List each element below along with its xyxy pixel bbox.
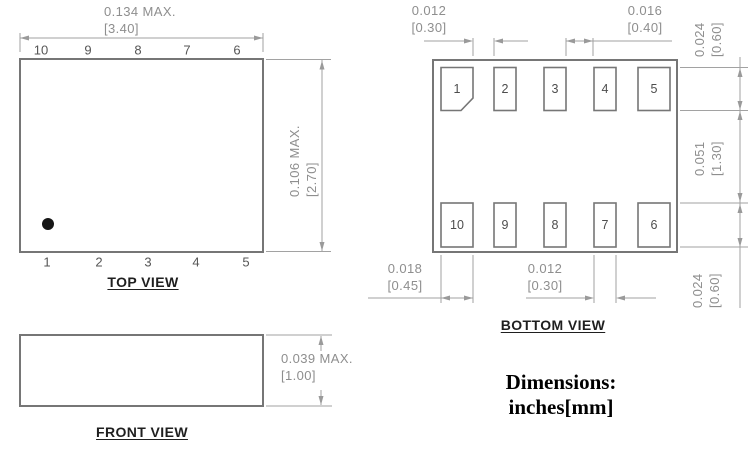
top-view-pin-label: 10 bbox=[34, 43, 48, 58]
dim-mm: [0.30] bbox=[523, 278, 567, 295]
dim-corner-pad-width-label: 0.018 [0.45] bbox=[385, 261, 425, 294]
pad-number-label: 4 bbox=[602, 82, 609, 96]
dim-gap-pad3-pad4-label: 0.016 [0.40] bbox=[623, 3, 667, 36]
dim-pad-height-bottom-label: 0.024 [0.60] bbox=[689, 258, 723, 308]
dim-mm: [0.60] bbox=[706, 258, 723, 308]
dim-gap-pad3-pad4 bbox=[566, 38, 672, 56]
dim-inches: 0.012 bbox=[407, 3, 451, 20]
dim-inches: 0.106 MAX. bbox=[286, 107, 303, 197]
dim-inches: 0.012 bbox=[523, 261, 567, 278]
dim-pad-height-top-label: 0.024 [0.60] bbox=[691, 7, 725, 57]
dim-inches: 0.051 bbox=[691, 126, 708, 176]
dim-gap-pad1-pad2-label: 0.012 [0.30] bbox=[407, 3, 451, 36]
dim-row-spacing-label: 0.051 [1.30] bbox=[691, 126, 725, 176]
package-outline-drawing: 0.134 MAX. [3.40] 0.106 MAX. [2.70] 10 9… bbox=[0, 0, 753, 451]
dim-inner-pad-width-label: 0.012 [0.30] bbox=[523, 261, 567, 294]
pad-number-label: 3 bbox=[552, 82, 559, 96]
dim-top-view-height-label: 0.106 MAX. [2.70] bbox=[286, 107, 320, 197]
pad-number-label: 2 bbox=[502, 82, 509, 96]
dim-inches: 0.018 bbox=[385, 261, 425, 278]
pad-number-label: 5 bbox=[651, 82, 658, 96]
dim-inches: 0.039 MAX. bbox=[281, 351, 353, 368]
pad-number-label: 9 bbox=[502, 218, 509, 232]
pad-number-label: 6 bbox=[651, 218, 658, 232]
dim-mm: [2.70] bbox=[303, 107, 320, 197]
dim-gap-pad1-pad2 bbox=[424, 38, 528, 56]
top-view-pin-label: 9 bbox=[84, 43, 91, 58]
dim-inches: 0.016 bbox=[623, 3, 667, 20]
top-view-pin-label: 5 bbox=[242, 255, 249, 270]
dim-mm: [3.40] bbox=[104, 21, 176, 38]
top-view-pin-label: 1 bbox=[43, 255, 50, 270]
dim-top-view-width-label: 0.134 MAX. [3.40] bbox=[104, 4, 176, 37]
dim-mm: [0.60] bbox=[708, 7, 725, 57]
top-view-pin-label: 6 bbox=[233, 43, 240, 58]
top-view-title: TOP VIEW bbox=[84, 274, 202, 290]
pad-number-label: 1 bbox=[454, 82, 461, 96]
dim-mm: [1.00] bbox=[281, 368, 353, 385]
front-view-body bbox=[20, 335, 263, 406]
top-view-pin-label: 2 bbox=[95, 255, 102, 270]
dim-mm: [1.30] bbox=[708, 126, 725, 176]
pad-number-label: 8 bbox=[552, 218, 559, 232]
top-view-pin-label: 4 bbox=[192, 255, 199, 270]
dim-mm: [0.40] bbox=[623, 20, 667, 37]
top-view-pin-label: 7 bbox=[183, 43, 190, 58]
front-view-title: FRONT VIEW bbox=[83, 424, 201, 440]
top-view-pin-label: 3 bbox=[144, 255, 151, 270]
dim-inches: 0.024 bbox=[691, 7, 708, 57]
dim-inches: 0.024 bbox=[689, 258, 706, 308]
dim-front-view-height-label: 0.039 MAX. [1.00] bbox=[281, 351, 353, 384]
dim-inches: 0.134 MAX. bbox=[104, 4, 176, 21]
dim-mm: [0.30] bbox=[407, 20, 451, 37]
bottom-view-title: BOTTOM VIEW bbox=[494, 317, 612, 333]
dim-mm: [0.45] bbox=[385, 278, 425, 295]
pad-number-label: 7 bbox=[602, 218, 609, 232]
top-view-body bbox=[20, 59, 263, 252]
units-note: Dimensions: inches[mm] bbox=[451, 370, 671, 420]
pad-number-label: 10 bbox=[450, 218, 464, 232]
pin1-indicator-dot bbox=[42, 218, 54, 230]
top-view-pin-label: 8 bbox=[134, 43, 141, 58]
top-view bbox=[20, 33, 331, 252]
